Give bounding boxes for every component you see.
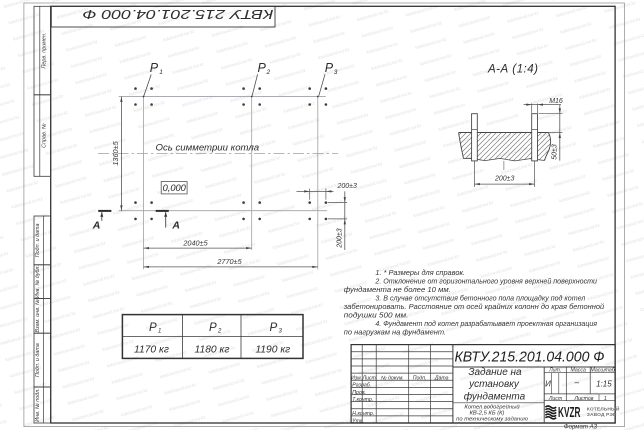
svg-text:И: И bbox=[545, 379, 551, 388]
svg-text:Утв.: Утв. bbox=[352, 418, 364, 424]
svg-text:Инв. № дубл.: Инв. № дубл. bbox=[35, 265, 41, 298]
svg-text:КВТУ.215.201.04.000 Ф: КВТУ.215.201.04.000 Ф bbox=[455, 349, 605, 366]
svg-text:Лит.: Лит. bbox=[548, 367, 561, 373]
svg-text:А: А bbox=[171, 220, 180, 232]
svg-text:3: 3 bbox=[334, 69, 338, 76]
svg-text:2: 2 bbox=[217, 329, 222, 335]
svg-text:фундамента: фундамента bbox=[464, 390, 526, 402]
svg-text:Формат А3: Формат А3 bbox=[564, 423, 598, 430]
svg-text:Р: Р bbox=[150, 61, 159, 75]
svg-text:Р: Р bbox=[325, 61, 334, 75]
svg-text:2: 2 bbox=[266, 69, 271, 76]
svg-text:А: А bbox=[92, 220, 101, 232]
svg-text:Ось симметрии котла: Ось симметрии котла bbox=[156, 142, 260, 152]
svg-text:Котел водогрейный: Котел водогрейный bbox=[464, 403, 520, 410]
svg-text:1: 1 bbox=[159, 69, 163, 76]
svg-text:KVZR: KVZR bbox=[558, 405, 581, 421]
svg-text:1180 кг: 1180 кг bbox=[195, 345, 230, 356]
svg-text:200±3: 200±3 bbox=[336, 183, 357, 190]
svg-text:1:15: 1:15 bbox=[596, 379, 612, 388]
svg-text:1: 1 bbox=[604, 396, 607, 402]
svg-text:Пров.: Пров. bbox=[352, 390, 366, 396]
svg-text:1360±5: 1360±5 bbox=[111, 140, 120, 165]
svg-text:Р: Р bbox=[258, 61, 267, 75]
svg-text:Лист: Лист bbox=[548, 396, 563, 402]
svg-text:Р: Р bbox=[209, 322, 217, 334]
svg-text:Подп. и дата: Подп. и дата bbox=[35, 343, 41, 377]
svg-text:Лист: Лист bbox=[362, 376, 377, 382]
svg-text:Дата: Дата bbox=[434, 376, 449, 382]
svg-text:№ докум.: № докум. bbox=[381, 376, 404, 382]
svg-text:Задание на: Задание на bbox=[468, 367, 522, 378]
svg-text:по нагрузкам на фундамент.: по нагрузкам на фундамент. bbox=[344, 328, 446, 337]
svg-text:А-А (1:4): А-А (1:4) bbox=[487, 64, 539, 76]
svg-text:Масса: Масса bbox=[571, 367, 586, 373]
svg-text:2770±5: 2770±5 bbox=[216, 257, 242, 266]
svg-text:2040±5: 2040±5 bbox=[182, 238, 208, 247]
svg-text:КВТУ 215.201.04.000 Ф: КВТУ 215.201.04.000 Ф bbox=[83, 7, 274, 22]
svg-text:Подп.: Подп. bbox=[413, 376, 427, 382]
svg-text:М16: М16 bbox=[549, 98, 563, 105]
svg-text:0,000: 0,000 bbox=[163, 183, 187, 193]
svg-text:Р: Р bbox=[270, 322, 278, 334]
svg-text:установку: установку bbox=[468, 379, 520, 390]
svg-text:Р: Р bbox=[149, 322, 157, 334]
svg-text:Перв. примен.: Перв. примен. bbox=[42, 33, 48, 69]
svg-text:Взам. инв. №: Взам. инв. № bbox=[35, 299, 41, 333]
svg-text:1170 кг: 1170 кг bbox=[134, 345, 169, 356]
svg-text:50±3: 50±3 bbox=[552, 144, 559, 160]
svg-text:Масштаб: Масштаб bbox=[590, 367, 615, 373]
svg-text:Инв. № подл.: Инв. № подл. bbox=[35, 388, 41, 421]
svg-text:200±3: 200±3 bbox=[337, 228, 344, 249]
svg-text:Изм.: Изм. bbox=[351, 376, 362, 382]
svg-text:Н.контр.: Н.контр. bbox=[352, 411, 374, 417]
svg-text:1190 кг: 1190 кг bbox=[255, 345, 290, 356]
svg-text:ЗАВОД РЭП: ЗАВОД РЭП bbox=[587, 412, 617, 418]
svg-text:Справ. №: Справ. № bbox=[42, 123, 48, 148]
svg-text:Т.контр.: Т.контр. bbox=[352, 397, 373, 403]
svg-text:200±3: 200±3 bbox=[494, 176, 515, 183]
svg-text:по техническому заданию: по техническому заданию bbox=[456, 416, 528, 422]
svg-text:–: – bbox=[574, 378, 580, 387]
svg-text:Разраб.: Разраб. bbox=[352, 383, 371, 389]
svg-text:Листов: Листов bbox=[574, 396, 594, 402]
svg-text:Подп. и дата: Подп. и дата bbox=[35, 224, 41, 258]
svg-text:1: 1 bbox=[158, 329, 161, 335]
